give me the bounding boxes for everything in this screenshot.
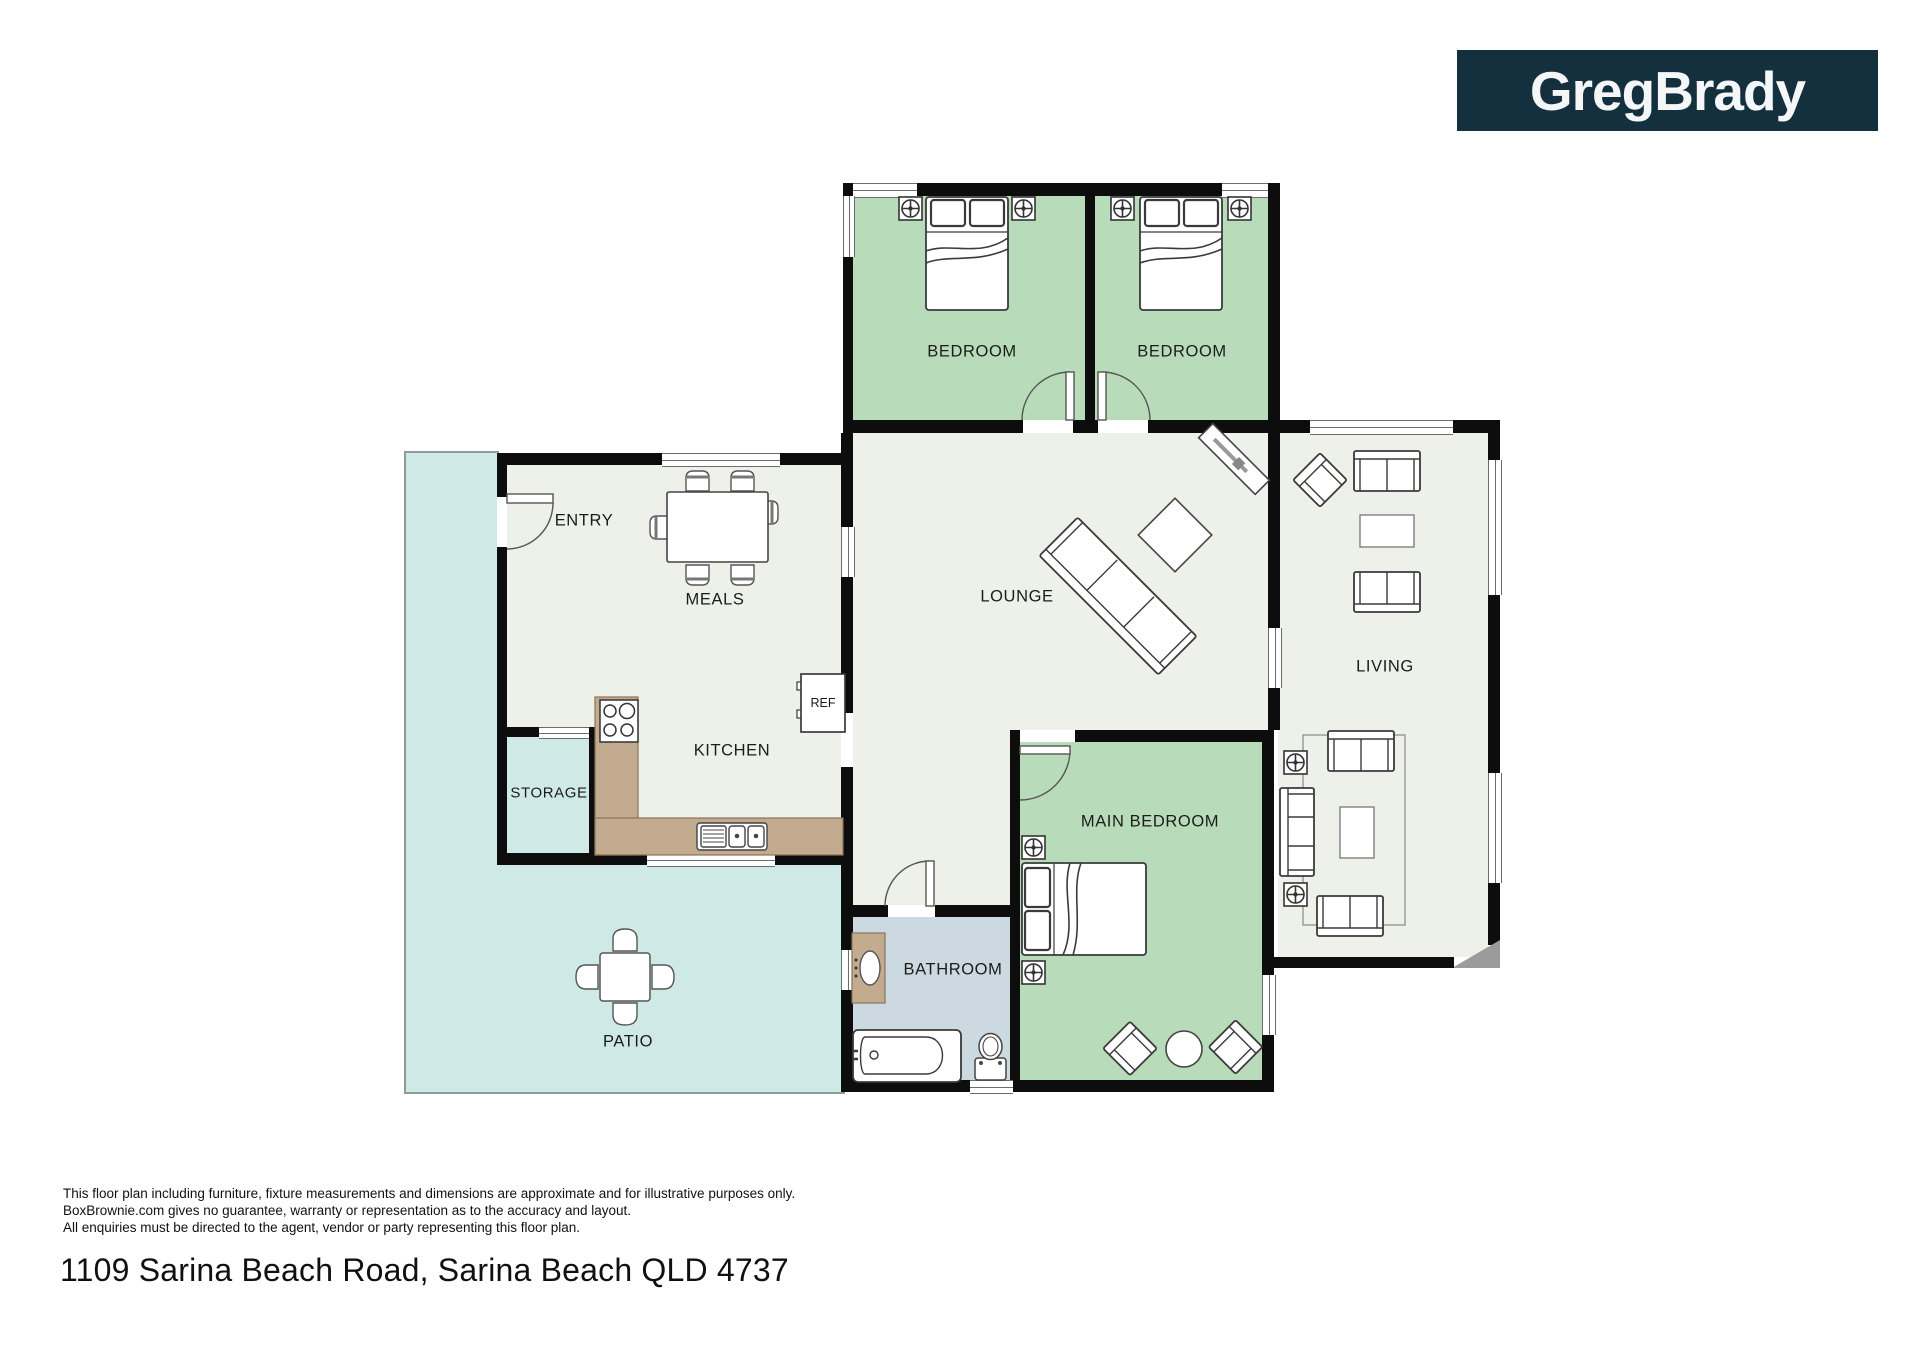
coffee-table xyxy=(1360,515,1414,547)
coffee-table xyxy=(1138,498,1212,572)
bedside-lamp-icon xyxy=(1012,197,1035,220)
disclaimer-line: BoxBrownie.com gives no guarantee, warra… xyxy=(63,1202,795,1219)
patio-table xyxy=(600,953,650,1001)
room-label-meals: MEALS xyxy=(686,591,745,610)
round-table xyxy=(1166,1031,1202,1067)
disclaimer-text: This floor plan including furniture, fix… xyxy=(63,1185,795,1236)
armchair xyxy=(1103,1022,1157,1076)
room-label-bedroom-1: BEDROOM xyxy=(927,343,1016,362)
bed xyxy=(926,197,1008,310)
door xyxy=(1098,372,1150,420)
sofa xyxy=(1317,896,1383,936)
door xyxy=(1022,372,1074,420)
entry-door xyxy=(507,494,553,549)
tv-unit xyxy=(1199,424,1270,495)
room-label-bedroom-2: BEDROOM xyxy=(1137,343,1226,362)
vanity xyxy=(852,933,885,1003)
fridge-label: REF xyxy=(811,696,836,710)
room-label-entry: ENTRY xyxy=(555,512,614,531)
stove xyxy=(600,700,638,742)
room-label-bathroom: BATHROOM xyxy=(904,961,1003,980)
coffee-table xyxy=(1340,807,1374,858)
agency-logo-text: GregBrady xyxy=(1530,59,1805,123)
agency-logo: GregBrady xyxy=(1457,50,1878,131)
patio-set xyxy=(576,929,674,1025)
sofa xyxy=(1328,731,1394,771)
sofa xyxy=(1354,451,1420,491)
main-bedroom-door xyxy=(1020,746,1070,800)
main-bed xyxy=(1022,863,1146,955)
room-label-main-bedroom: MAIN BEDROOM xyxy=(1081,813,1219,832)
room-label-living: LIVING xyxy=(1356,658,1414,677)
bedside-lamp-icon xyxy=(899,197,922,220)
furniture-layer xyxy=(0,0,1920,1358)
side-table-lamp-icon xyxy=(1284,751,1307,774)
sofa xyxy=(1280,788,1314,876)
sink xyxy=(697,823,767,850)
room-label-kitchen: KITCHEN xyxy=(694,742,771,761)
bedside-lamp-icon xyxy=(1022,836,1045,859)
bedside-lamp-icon xyxy=(1111,197,1134,220)
sofa xyxy=(1354,572,1420,612)
floor-plan-page: BEDROOM BEDROOM LOUNGE LIVING ENTRY MEAL… xyxy=(0,0,1920,1358)
armchair xyxy=(1209,1020,1263,1074)
room-label-storage: STORAGE xyxy=(510,785,587,802)
room-label-patio: PATIO xyxy=(603,1033,653,1052)
property-address: 1109 Sarina Beach Road, Sarina Beach QLD… xyxy=(60,1252,789,1289)
toilet xyxy=(975,1034,1006,1081)
dining-table xyxy=(667,492,768,562)
bedside-lamp-icon xyxy=(1022,961,1045,984)
side-table-lamp-icon xyxy=(1284,883,1307,906)
bathroom-door xyxy=(885,861,934,906)
disclaimer-line: This floor plan including furniture, fix… xyxy=(63,1185,795,1202)
dining-set xyxy=(650,471,778,585)
bathtub xyxy=(853,1030,961,1082)
bedside-lamp-icon xyxy=(1228,197,1251,220)
armchair xyxy=(1293,453,1347,507)
room-label-lounge: LOUNGE xyxy=(980,588,1053,607)
disclaimer-line: All enquiries must be directed to the ag… xyxy=(63,1219,795,1236)
bed xyxy=(1140,197,1222,310)
